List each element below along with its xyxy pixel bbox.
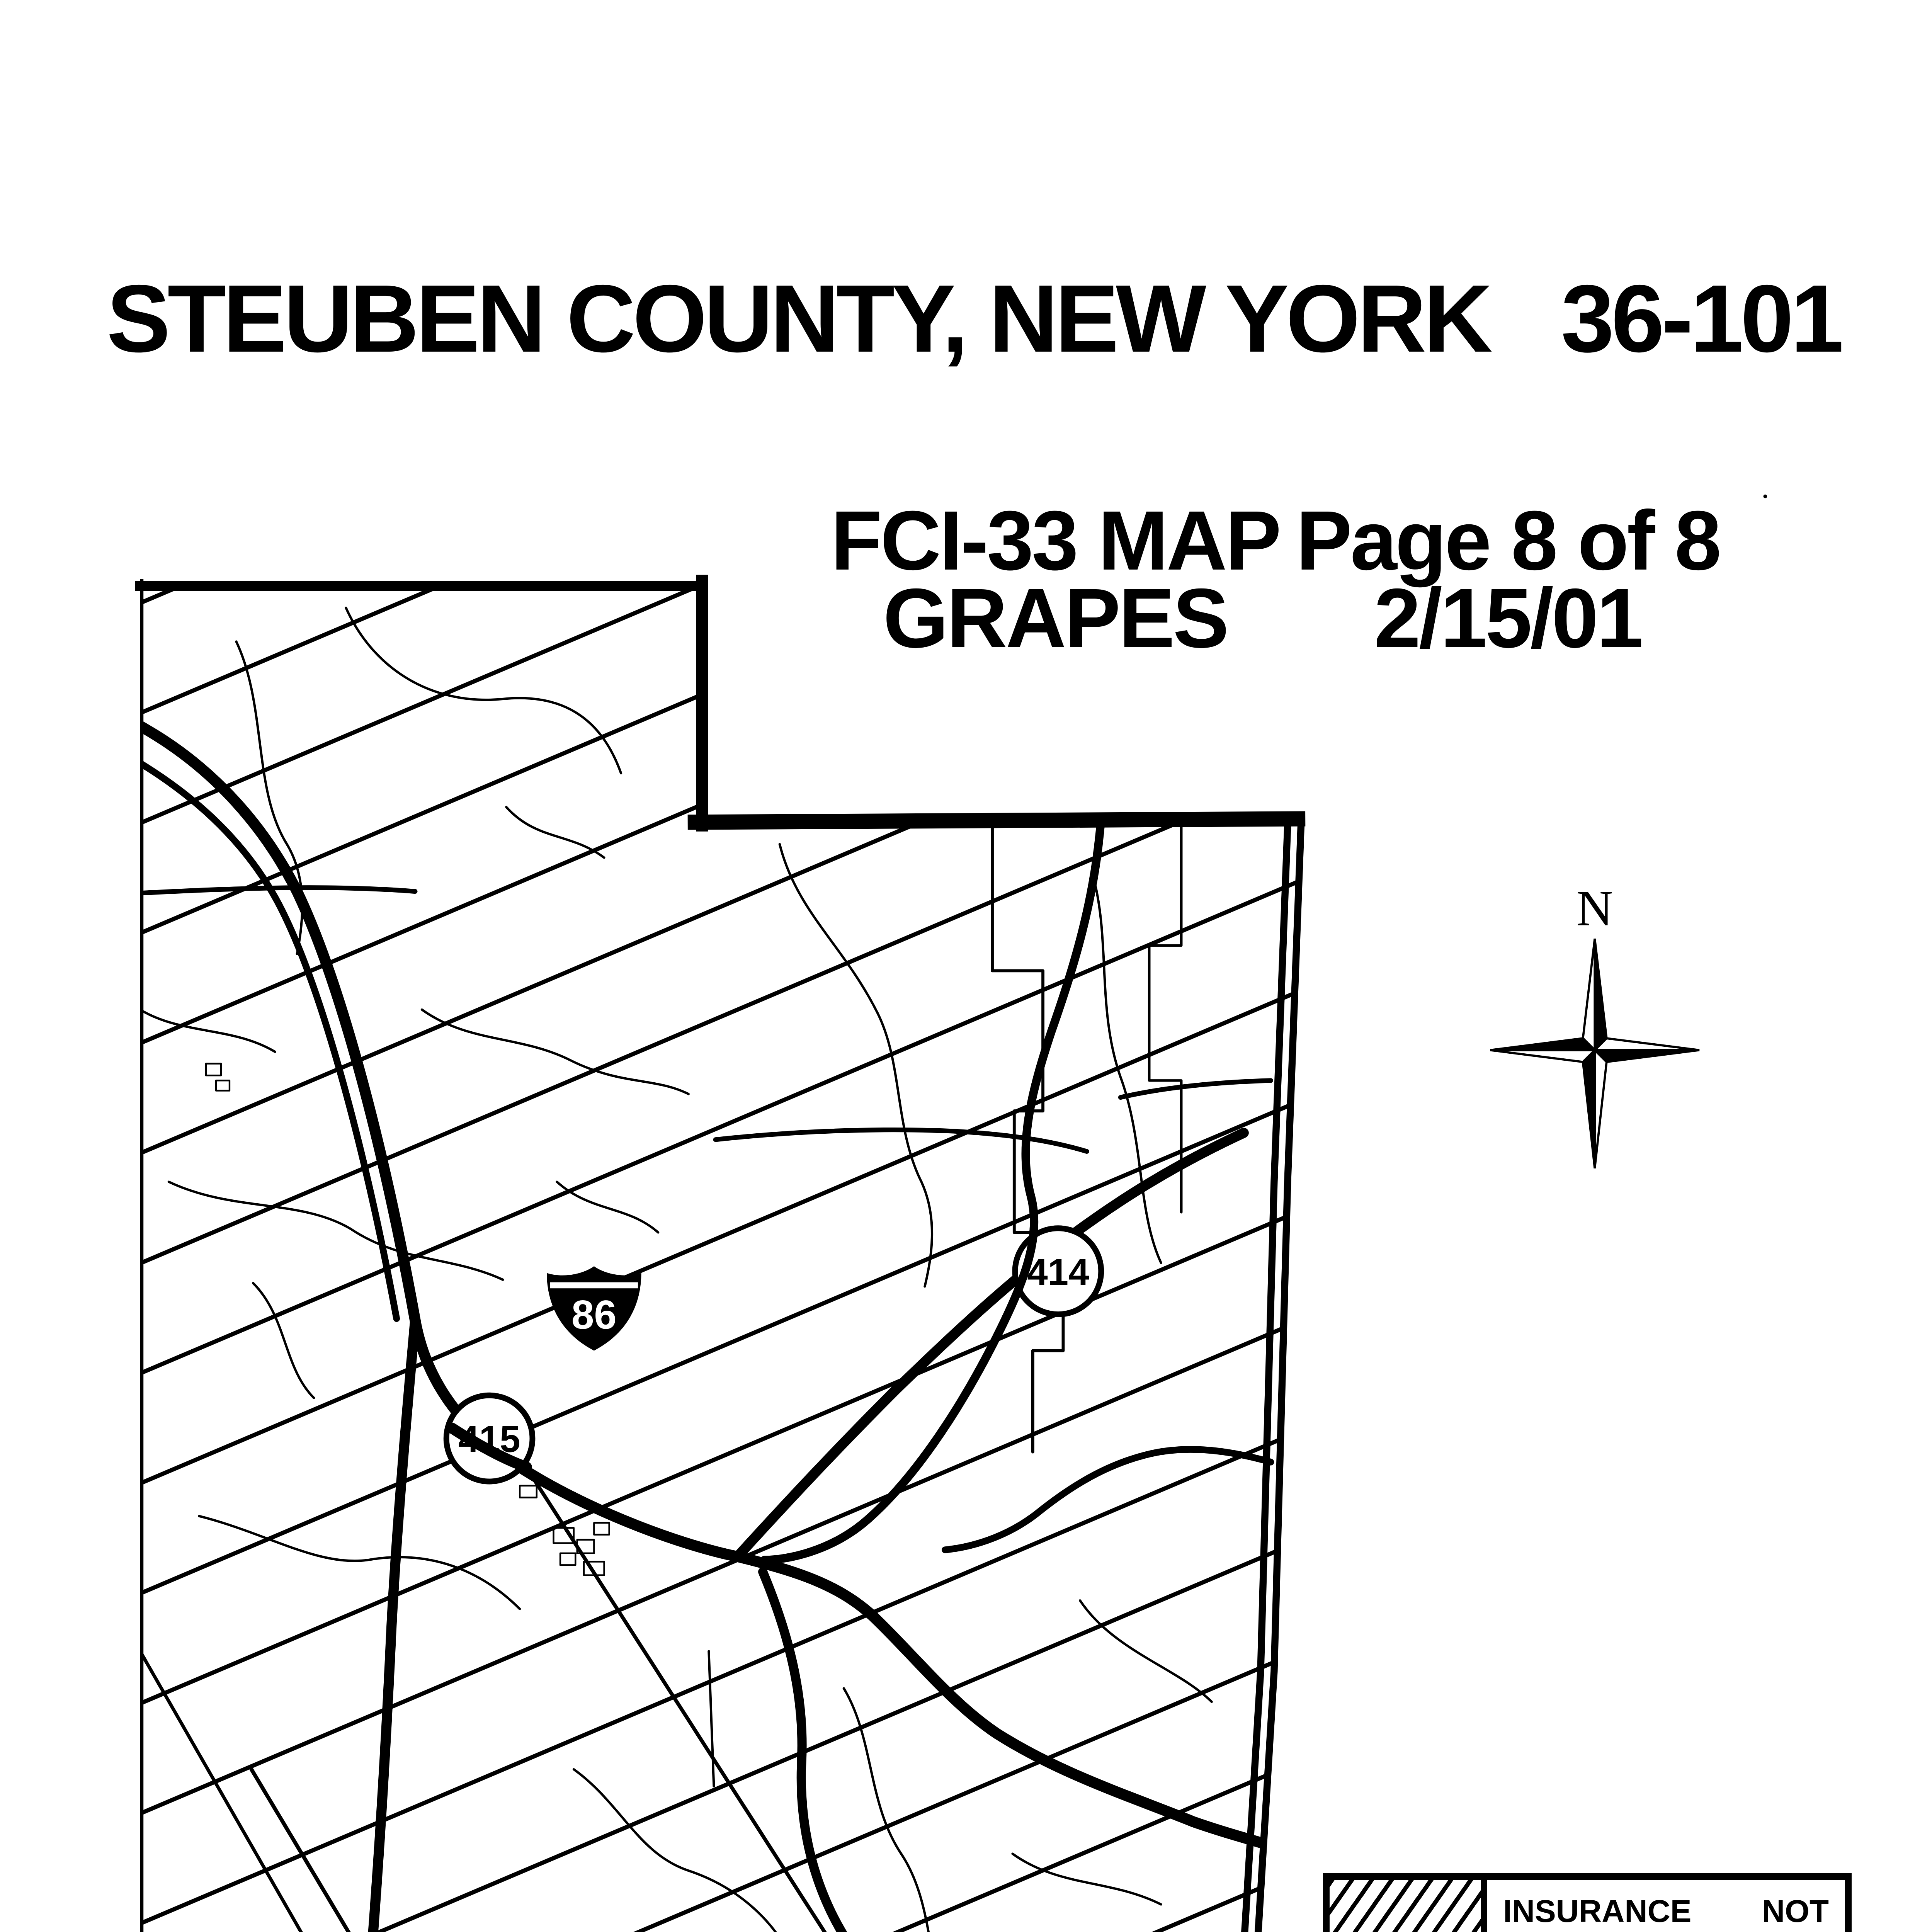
legend-text: INSURANCE NOT OFFERED ON LAND SO DESIGNA… xyxy=(1481,1880,1845,1932)
scanned-map-page: STEUBEN COUNTY, NEW YORK 36-101 FCI-33 M… xyxy=(0,0,1932,1932)
shield-414-label: 414 xyxy=(1027,1252,1089,1293)
north-label: N xyxy=(1577,880,1613,936)
legend-word: OFFERED xyxy=(1503,1930,1655,1932)
legend-line-1: INSURANCE NOT xyxy=(1503,1893,1829,1930)
shield-86-label: 86 xyxy=(571,1293,617,1338)
compass-star xyxy=(1490,939,1699,1168)
border-notch-horizontal xyxy=(695,819,1298,822)
legend-word: INSURANCE xyxy=(1503,1893,1691,1930)
scan-artifact xyxy=(1630,495,1767,1932)
county-map: 86 415 414 225 15 xyxy=(0,0,1932,1932)
legend-hatch-swatch xyxy=(1330,1880,1481,1932)
legend-box: INSURANCE NOT OFFERED ON LAND SO DESIGNA… xyxy=(1323,1873,1852,1932)
compass-rose: N xyxy=(1490,880,1699,1168)
legend-word: NOT xyxy=(1762,1893,1829,1930)
legend-line-2: OFFERED ON LAND xyxy=(1503,1930,1829,1932)
county-hatched-area xyxy=(140,581,1298,1932)
legend-word: ON xyxy=(1674,1930,1721,1932)
legend-word: LAND xyxy=(1741,1930,1829,1932)
